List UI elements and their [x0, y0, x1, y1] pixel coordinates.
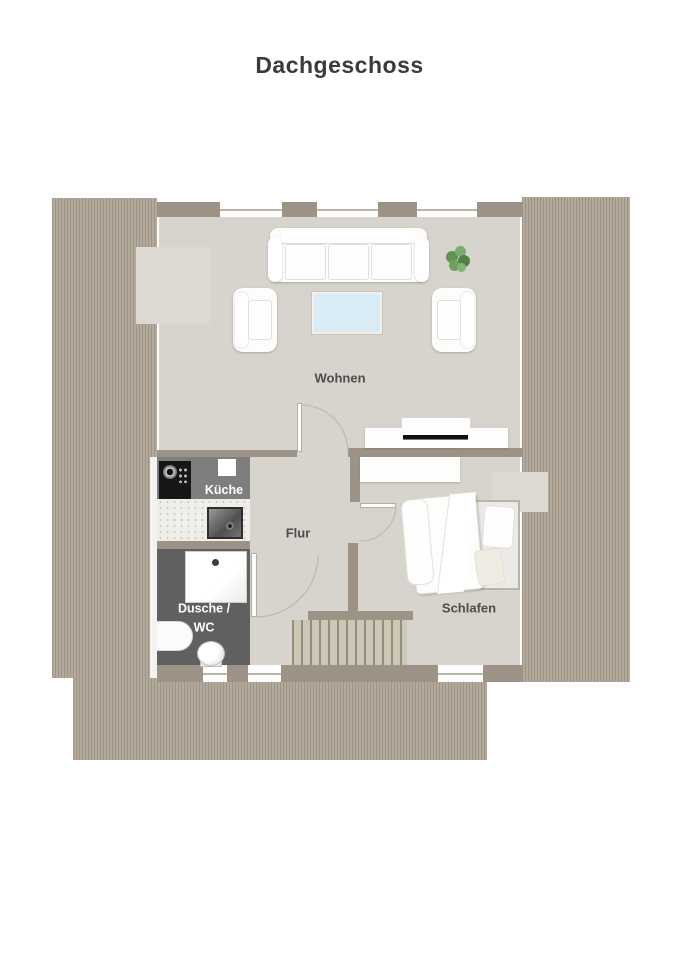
sofa-armrest-left — [268, 237, 282, 282]
tv-icon — [403, 435, 468, 440]
floorplan-page: Dachgeschoss — [0, 0, 679, 960]
room-label-kueche: Küche — [205, 483, 243, 497]
room-label-wohnen: Wohnen — [314, 371, 365, 386]
wall-kitchen-bath — [157, 541, 250, 549]
coffee-table-icon — [312, 292, 382, 334]
room-label-schlafen: Schlafen — [442, 601, 496, 616]
kitchen-sink-icon — [207, 507, 243, 539]
sofa-icon — [270, 228, 427, 282]
door-bath — [251, 553, 257, 617]
burner-icon — [163, 465, 177, 479]
kitchen-flue — [218, 459, 236, 476]
page-title: Dachgeschoss — [0, 52, 679, 79]
cooktop-icon — [159, 461, 191, 499]
room-label-dusche-wc: Dusche / WC — [178, 599, 230, 637]
wall-living-kitchen — [157, 450, 297, 457]
shower-icon — [185, 551, 247, 603]
armchair-seat — [248, 300, 272, 340]
armchair-backrest — [461, 292, 474, 348]
sofa-cushion — [328, 244, 369, 280]
armchair-right-icon — [432, 288, 476, 352]
window-top-3 — [417, 202, 477, 217]
kitchen-edge-strip — [150, 457, 157, 678]
wall-hall-bedroom-upper — [350, 457, 360, 502]
toilet-icon — [197, 641, 225, 666]
tv-sideboard-top — [402, 418, 470, 428]
wall-stairwell — [308, 611, 413, 620]
door-bedroom — [360, 503, 396, 508]
staircase — [292, 620, 407, 665]
roof-hatch-right — [522, 197, 630, 682]
plant-icon — [444, 245, 472, 275]
window-top-1 — [220, 202, 282, 217]
sofa-cushion — [371, 244, 412, 280]
armchair-seat — [437, 300, 461, 340]
wall-hall-bedroom-lower — [348, 543, 358, 611]
burner-dots-icon — [178, 467, 188, 483]
armchair-left-icon — [233, 288, 277, 352]
window-bottom-bath — [203, 665, 227, 682]
sofa-backrest — [282, 228, 415, 244]
door-living-hall — [297, 403, 302, 452]
sofa-armrest-right — [415, 237, 429, 282]
window-top-2 — [317, 202, 378, 217]
dormer-nook-living — [136, 247, 210, 324]
wardrobe-icon — [360, 457, 460, 482]
room-label-flur: Flur — [286, 526, 311, 541]
window-bottom-hall — [248, 665, 281, 682]
bed-pillow-icon — [473, 547, 505, 587]
armchair-backrest — [235, 292, 248, 348]
bed-pillow-icon — [482, 505, 516, 549]
room-label-dusche-line1: Dusche / — [178, 599, 230, 618]
wall-living-bedroom — [348, 448, 522, 457]
sofa-cushion — [285, 244, 326, 280]
room-label-dusche-line2: WC — [178, 618, 230, 637]
roof-hatch-bottom — [73, 678, 487, 760]
window-bottom-bedroom — [438, 665, 483, 682]
